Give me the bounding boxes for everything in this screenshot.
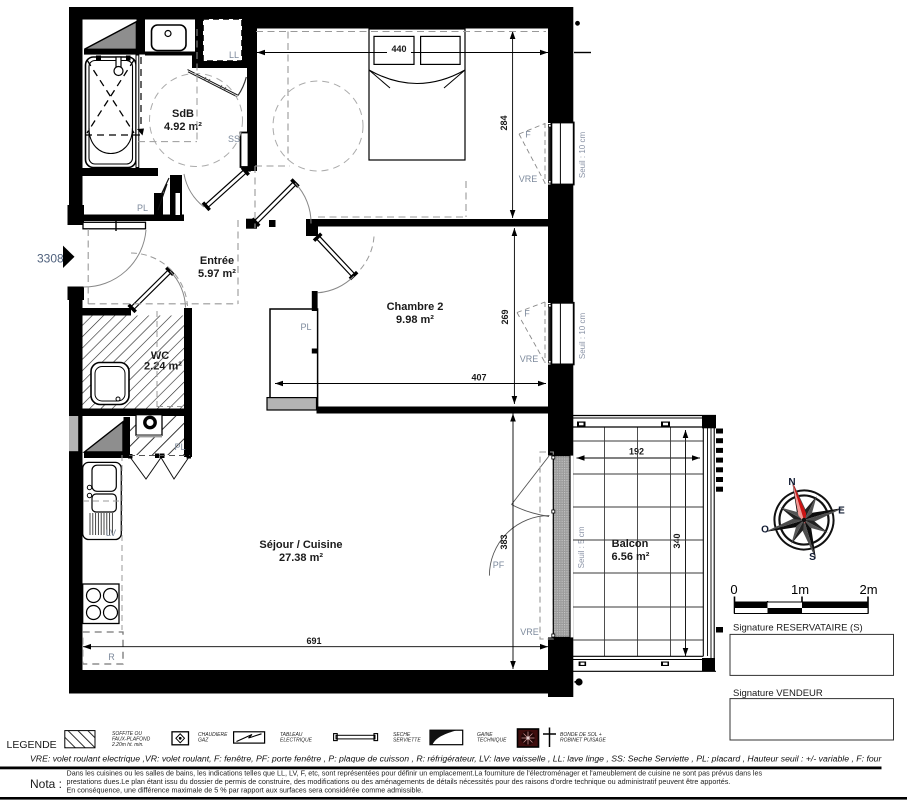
svg-text:LV: LV <box>106 528 116 538</box>
svg-text:Seuil : 10 cm: Seuil : 10 cm <box>578 132 587 179</box>
svg-text:269: 269 <box>500 309 510 324</box>
svg-text:5.97 m²: 5.97 m² <box>198 268 236 280</box>
svg-text:VRE: VRE <box>520 627 539 637</box>
svg-text:prestations dues.Le plan étant: prestations dues.Le plan étant issu du d… <box>67 777 731 786</box>
svg-text:Balcon: Balcon <box>612 538 649 550</box>
svg-text:2m: 2m <box>859 582 877 597</box>
svg-text:VRE: VRE <box>519 174 538 184</box>
svg-text:Nota :: Nota : <box>30 777 62 791</box>
svg-text:LL: LL <box>229 50 239 60</box>
svg-text:Seuil : 5 cm: Seuil : 5 cm <box>577 526 586 568</box>
svg-text:440: 440 <box>391 44 406 54</box>
svg-text:27.38 m²: 27.38 m² <box>279 552 323 564</box>
svg-text:340: 340 <box>672 533 682 548</box>
svg-text:Signature RESERVATAIRE (S): Signature RESERVATAIRE (S) <box>733 623 863 634</box>
svg-text:PL: PL <box>300 322 311 332</box>
svg-text:Signature VENDEUR: Signature VENDEUR <box>733 688 823 699</box>
svg-text:Chambre 2: Chambre 2 <box>387 301 444 313</box>
svg-text:SdB: SdB <box>172 108 194 120</box>
svg-text:284: 284 <box>499 115 509 130</box>
svg-text:9.98 m²: 9.98 m² <box>396 314 434 326</box>
svg-text:3308: 3308 <box>37 252 64 266</box>
svg-text:PF: PF <box>493 560 505 570</box>
svg-text:Entrée: Entrée <box>200 255 234 267</box>
svg-text:6.56 m²: 6.56 m² <box>612 551 650 563</box>
svg-text:691: 691 <box>306 636 321 646</box>
svg-text:Seuil : 10 cm: Seuil : 10 cm <box>578 313 587 360</box>
svg-text:407: 407 <box>471 373 486 383</box>
svg-text:192: 192 <box>629 447 644 457</box>
svg-text:0: 0 <box>730 582 737 597</box>
svg-text:VRE: VRE <box>520 354 539 364</box>
svg-text:Dans les cuisines ou les salle: Dans les cuisines ou les salles de bains… <box>67 768 763 777</box>
svg-text:F: F <box>525 130 531 140</box>
svg-text:PL: PL <box>174 442 185 452</box>
svg-text:2.24 m²: 2.24 m² <box>144 361 182 373</box>
svg-text:383: 383 <box>499 534 509 549</box>
svg-text:R: R <box>108 652 115 662</box>
svg-text:O: O <box>761 525 769 536</box>
svg-text:N: N <box>788 477 795 488</box>
svg-text:PL: PL <box>137 203 148 213</box>
svg-text:SS: SS <box>228 134 240 144</box>
svg-text:BONDE DE SOL +ROBINET PUISAGE: BONDE DE SOL +ROBINET PUISAGE <box>560 732 607 744</box>
svg-text:Séjour / Cuisine: Séjour / Cuisine <box>259 539 342 551</box>
svg-text:E: E <box>838 506 845 517</box>
svg-text:1m: 1m <box>791 582 809 597</box>
svg-text:S: S <box>809 552 816 563</box>
svg-text:F: F <box>524 309 530 319</box>
svg-text:VRE: volet roulant electrique: VRE: volet roulant electrique ,VR: volet… <box>30 754 883 764</box>
svg-text:LEGENDE: LEGENDE <box>7 739 57 751</box>
svg-text:En conséquence, une différence: En conséquence, une différence maximale … <box>67 786 424 795</box>
